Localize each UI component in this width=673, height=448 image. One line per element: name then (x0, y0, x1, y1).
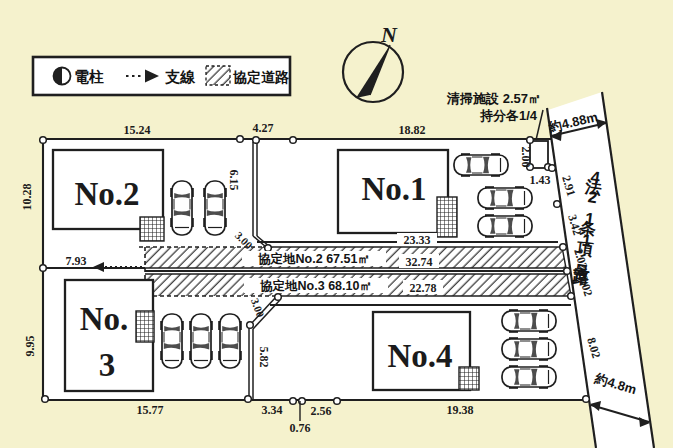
dim-no3-left: 9.95 (23, 336, 37, 357)
legend-box: 電柱 支線 協定道路 (33, 57, 290, 95)
dim-no1-south: 23.33 (404, 233, 431, 247)
porch-no2 (140, 217, 164, 241)
porch-no3 (136, 311, 154, 342)
north-label: N (380, 22, 398, 47)
plot-no2-label: No.2 (74, 176, 139, 212)
dim-between-top: 4.27 (253, 121, 274, 135)
dim-divider-height: 6.15 (227, 170, 241, 191)
dim-no2-offset: 7.93 (66, 254, 87, 268)
dim-no4-bottom: 19.38 (447, 403, 474, 417)
plot-no3-label-line2: 3 (99, 347, 116, 383)
agreement-road-icon (206, 66, 230, 85)
dim-no1-top: 18.82 (399, 123, 426, 137)
car-icon (203, 181, 227, 235)
car-icon (170, 181, 194, 235)
agreement-row1-length: 32.74 (406, 255, 433, 269)
car-icon (218, 314, 242, 368)
car-icon (502, 309, 556, 333)
legend-pole-label: 電柱 (74, 68, 104, 85)
dim-no2-top: 15.24 (124, 123, 151, 137)
dim-facility-bottom: 1.43 (530, 173, 551, 187)
car-icon (454, 153, 508, 177)
legend-road-label: 協定道路 (233, 69, 290, 85)
dim-bottom-c: 2.56 (311, 404, 332, 418)
cleaning-facility-note: 清掃施設 2.57㎡ (446, 91, 541, 106)
dim-no3-parking-edge: 5.82 (257, 347, 271, 368)
legend-wire-label: 支線 (164, 68, 196, 85)
site-plan-drawing: N 電柱 支線 協定道路 No.2 No.1 No. 3 No.4 協定地No.… (0, 0, 673, 448)
agreement-row2-length: 22.78 (410, 281, 437, 295)
car-icon (502, 365, 556, 389)
porch-no4 (459, 367, 479, 390)
porch-no1 (437, 197, 457, 237)
plot-no4-label: No.4 (387, 338, 452, 374)
car-icon (160, 314, 184, 368)
car-icon (478, 214, 532, 238)
plot-no1-label: No.1 (361, 171, 426, 207)
dim-facility-left: 2.00 (519, 147, 533, 168)
car-icon (189, 314, 213, 368)
car-icon (478, 186, 532, 210)
plot-no3-label-line1: No. (80, 301, 129, 337)
cleaning-facility-share: 持分各1/4 (479, 108, 538, 123)
agreement-row2-label: 協定地No.3 68.10㎡ (260, 279, 372, 293)
agreement-row1-label: 協定地No.2 67.51㎡ (258, 252, 370, 266)
site-plan-page: N 電柱 支線 協定道路 No.2 No.1 No. 3 No.4 協定地No.… (0, 0, 673, 448)
dim-no2-left: 10.28 (20, 184, 34, 211)
dim-bottom-a: 3.34 (262, 403, 283, 417)
dim-no3-bottom: 15.77 (137, 403, 164, 417)
car-icon (502, 337, 556, 361)
dim-bottom-b: 0.76 (290, 421, 311, 435)
